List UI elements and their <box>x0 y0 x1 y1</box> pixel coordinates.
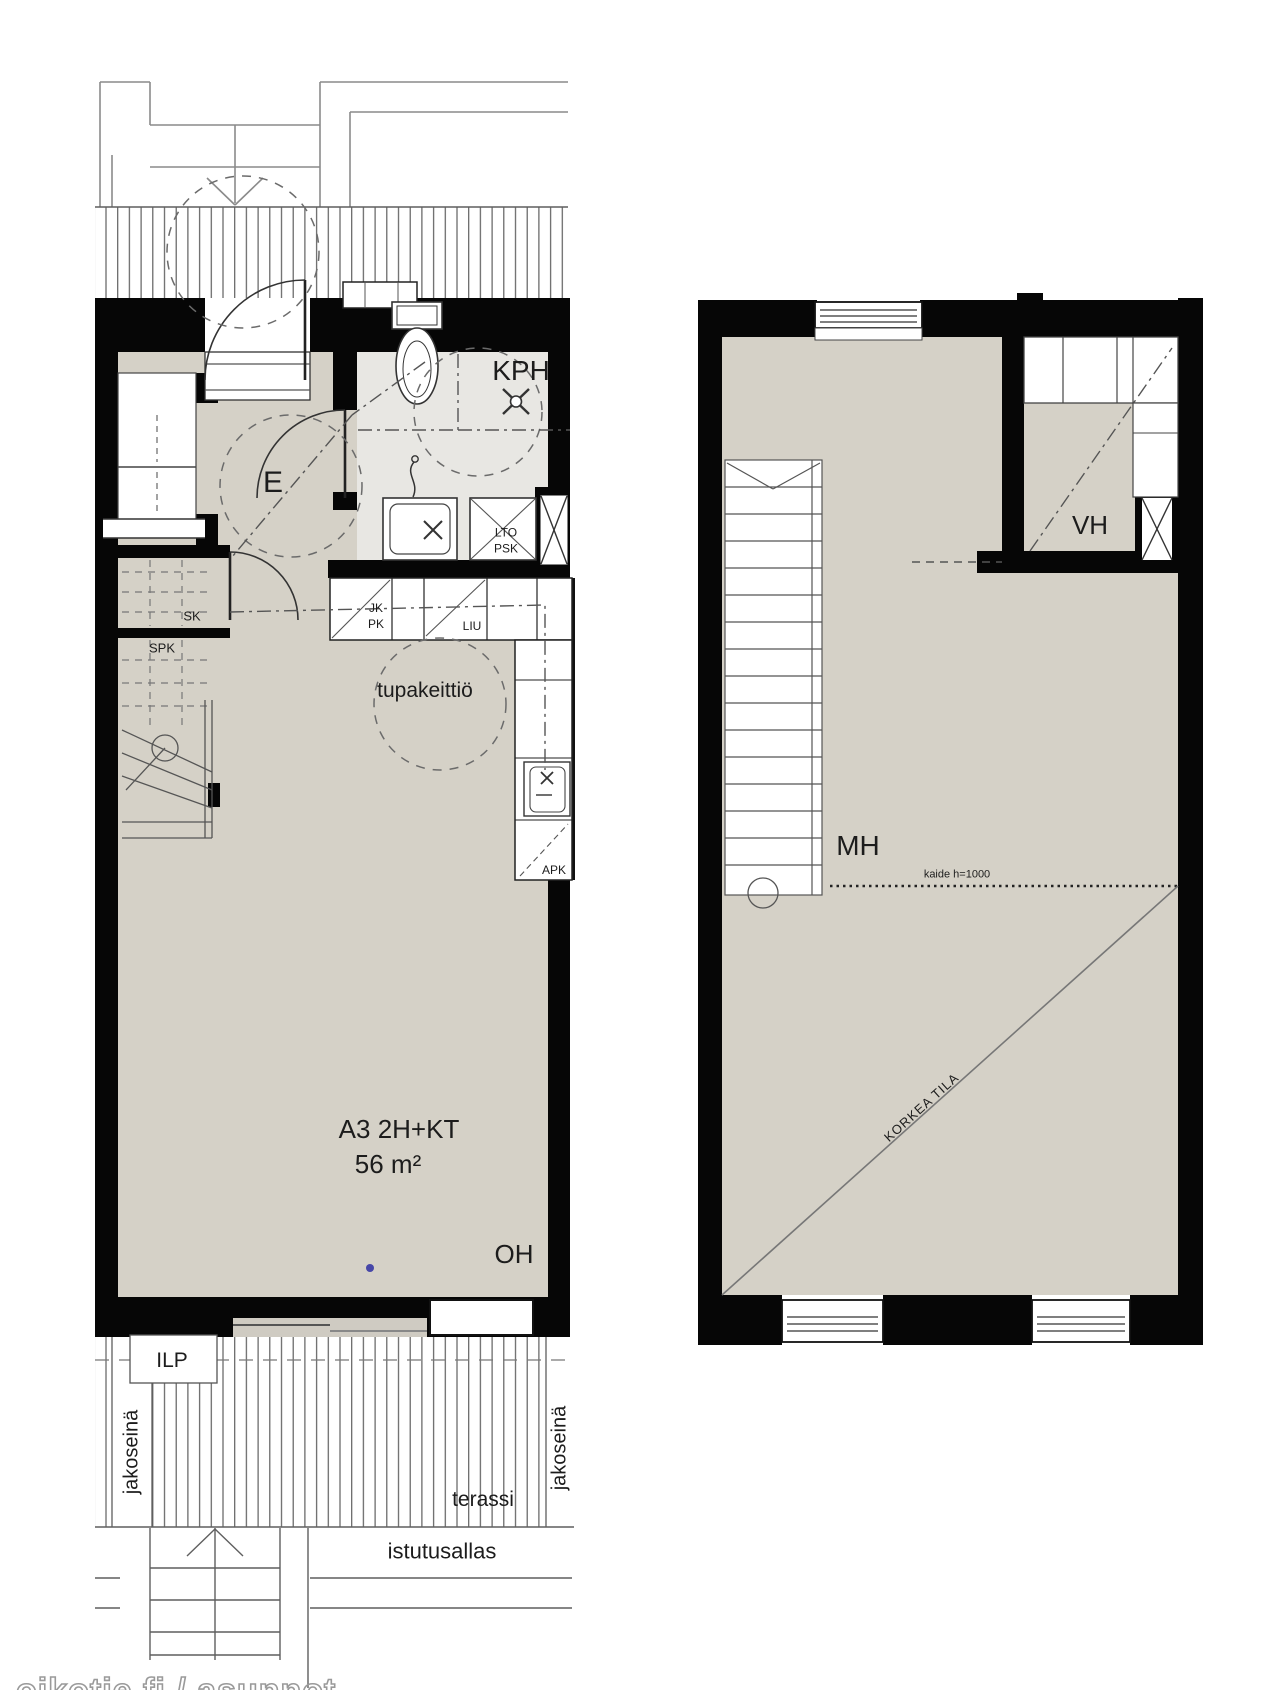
floor2-plan <box>698 293 1203 1345</box>
appliance-label-psk: PSK <box>494 542 518 557</box>
kitchen-counter <box>515 640 572 880</box>
floorplan-page: KPH E SK SPK LTO PSK JK PK LIU APK tupak… <box>0 0 1284 1690</box>
divider-label-left: jakoseinä <box>121 1410 144 1495</box>
closet-label-sk: SK <box>183 610 200 625</box>
divider-label-right: jakoseinä <box>549 1406 572 1491</box>
closet-doorway <box>103 519 205 538</box>
floor1-plan <box>95 82 574 1688</box>
appliance-label-apk: APK <box>542 864 566 878</box>
room-label-kph: KPH <box>492 355 550 387</box>
ilp-label: ILP <box>156 1349 188 1373</box>
room-label-e: E <box>263 466 283 501</box>
railing-label: kaide h=1000 <box>924 869 990 882</box>
watermark-text: oikotie.fi / asunnot <box>16 1672 436 1690</box>
stairs-floor2 <box>725 460 822 908</box>
closet-label-spk: SPK <box>149 642 175 657</box>
appliance-label-pk: PK <box>368 618 384 632</box>
garden-stairs <box>95 1528 572 1688</box>
marker-dot <box>366 1264 374 1272</box>
appliance-label-lto: LTO <box>495 526 517 541</box>
appliance-label-liu: LIU <box>463 620 482 634</box>
shaft-box <box>541 496 567 564</box>
apartment-code: A3 2H+KT <box>339 1115 460 1145</box>
planter-label: istutusallas <box>388 1538 497 1563</box>
floorplan-drawing <box>0 0 1284 1690</box>
apartment-area: 56 m² <box>355 1150 421 1180</box>
terrace-label: terassi <box>452 1488 514 1512</box>
appliance-label-jk: JK <box>369 602 383 616</box>
room-label-mh: MH <box>836 830 880 862</box>
room-label-kitchen: tupakeittiö <box>377 679 473 703</box>
toilet-icon <box>392 302 442 404</box>
room-label-vh: VH <box>1072 511 1108 541</box>
entrance-deck-hatch <box>95 207 568 298</box>
room-label-oh: OH <box>495 1240 534 1270</box>
floor2-shaft-box <box>1142 498 1172 560</box>
floor2-top-window <box>815 302 922 340</box>
hall-closet <box>118 373 196 520</box>
entrance-canopy-lines <box>100 82 568 207</box>
entry-threshold <box>205 352 310 400</box>
